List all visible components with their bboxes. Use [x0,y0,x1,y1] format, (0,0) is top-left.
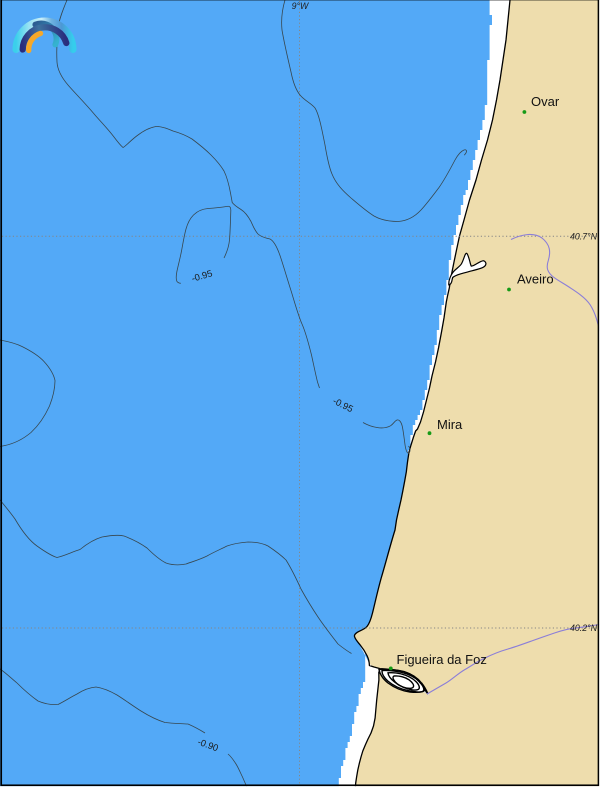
svg-text:40.2°N: 40.2°N [570,623,598,633]
svg-text:Ovar: Ovar [531,94,560,109]
svg-text:Aveiro: Aveiro [517,272,554,287]
svg-text:9°W: 9°W [292,1,309,11]
svg-text:Mira: Mira [437,417,463,432]
svg-text:40.7°N: 40.7°N [570,232,598,242]
svg-text:Figueira da Foz: Figueira da Foz [397,652,487,667]
